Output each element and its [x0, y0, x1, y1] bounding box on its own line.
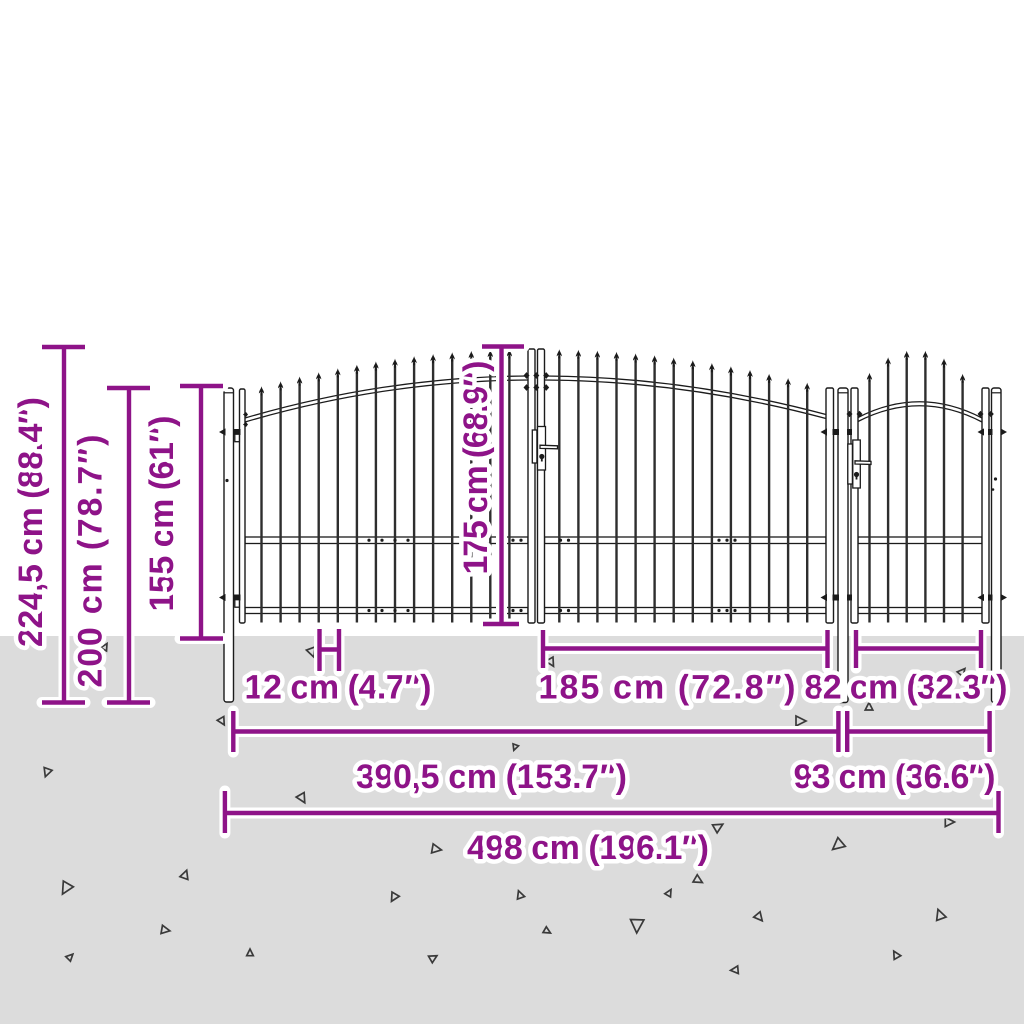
svg-text:12 cm (4.7″): 12 cm (4.7″): [245, 669, 432, 707]
svg-text:82 cm (32.3″): 82 cm (32.3″): [805, 669, 1008, 707]
svg-text:224,5 cm (88.4″): 224,5 cm (88.4″): [12, 397, 50, 647]
svg-text:185 cm (72.8″): 185 cm (72.8″): [539, 669, 796, 707]
svg-text:200 cm (78.7″): 200 cm (78.7″): [72, 435, 110, 688]
svg-text:498 cm (196.1″): 498 cm (196.1″): [467, 829, 709, 867]
svg-text:155 cm (61″): 155 cm (61″): [143, 416, 181, 612]
svg-text:390,5 cm (153.7″): 390,5 cm (153.7″): [356, 758, 627, 796]
svg-text:93 cm (36.6″): 93 cm (36.6″): [794, 758, 996, 796]
svg-text:175 cm (68.9″): 175 cm (68.9″): [457, 361, 495, 575]
